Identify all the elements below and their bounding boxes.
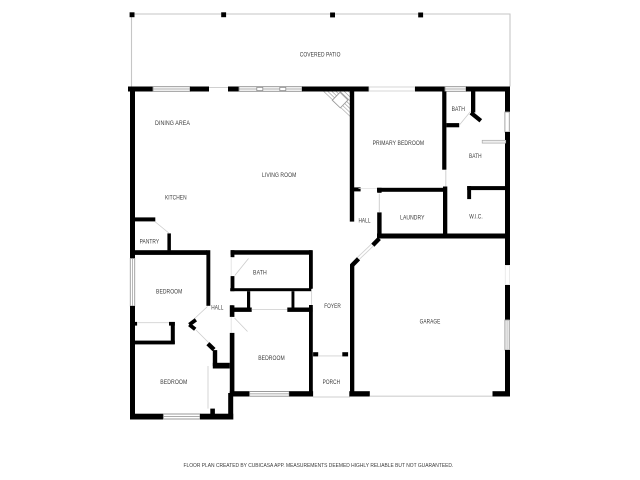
- svg-text:KITCHEN: KITCHEN: [165, 195, 187, 202]
- svg-text:BEDROOM: BEDROOM: [258, 355, 285, 362]
- svg-text:BATH: BATH: [253, 270, 267, 277]
- svg-text:PRIMARY BEDROOM: PRIMARY BEDROOM: [373, 140, 425, 147]
- svg-text:COVERED PATIO: COVERED PATIO: [300, 52, 341, 59]
- svg-text:BEDROOM: BEDROOM: [156, 288, 182, 295]
- svg-text:PORCH: PORCH: [323, 379, 341, 386]
- svg-text:BATH: BATH: [469, 153, 482, 160]
- svg-text:GARAGE: GARAGE: [420, 319, 441, 326]
- svg-text:W.I.C.: W.I.C.: [469, 214, 483, 221]
- svg-text:FLOOR PLAN CREATED BY CUBICASA: FLOOR PLAN CREATED BY CUBICASA APP. MEAS…: [184, 463, 454, 469]
- svg-text:FOYER: FOYER: [324, 303, 341, 310]
- svg-text:LAUNDRY: LAUNDRY: [400, 214, 425, 221]
- svg-text:HALL: HALL: [358, 218, 370, 225]
- svg-text:HALL: HALL: [211, 305, 223, 312]
- svg-text:BATH: BATH: [452, 106, 466, 113]
- svg-text:PANTRY: PANTRY: [140, 238, 160, 245]
- svg-text:DINING AREA: DINING AREA: [155, 120, 191, 127]
- svg-text:BEDROOM: BEDROOM: [160, 379, 187, 386]
- svg-text:LIVING ROOM: LIVING ROOM: [262, 172, 296, 179]
